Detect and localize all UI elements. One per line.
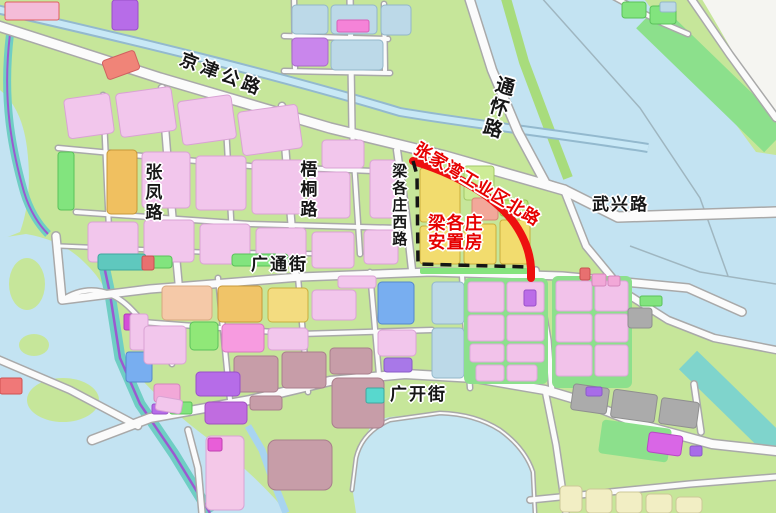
highlight-zone-label-line1: 梁各庄 (428, 215, 484, 234)
map-canvas[interactable] (0, 0, 776, 513)
road-label-wuxing-road: 武兴路 (592, 196, 649, 214)
road-label-zhangfeng-road: 张凤路 (142, 163, 160, 223)
road-label-guangtong-street: 广通街 (251, 256, 308, 274)
road-label-wutong-road: 梧桐路 (297, 160, 315, 220)
highlight-zone-label-line2: 安置房 (428, 234, 484, 253)
map-viewport[interactable]: 京津公路 通怀路 武兴路 张凤路 梧桐路 梁各庄西路 广通街 广开街 张家湾工业… (0, 0, 776, 513)
road-label-guangkai-street: 广开街 (390, 386, 447, 404)
road-label-lianggezhuang-west-road: 梁各庄西路 (391, 163, 407, 248)
highlight-zone-label: 梁各庄 安置房 (428, 215, 484, 253)
